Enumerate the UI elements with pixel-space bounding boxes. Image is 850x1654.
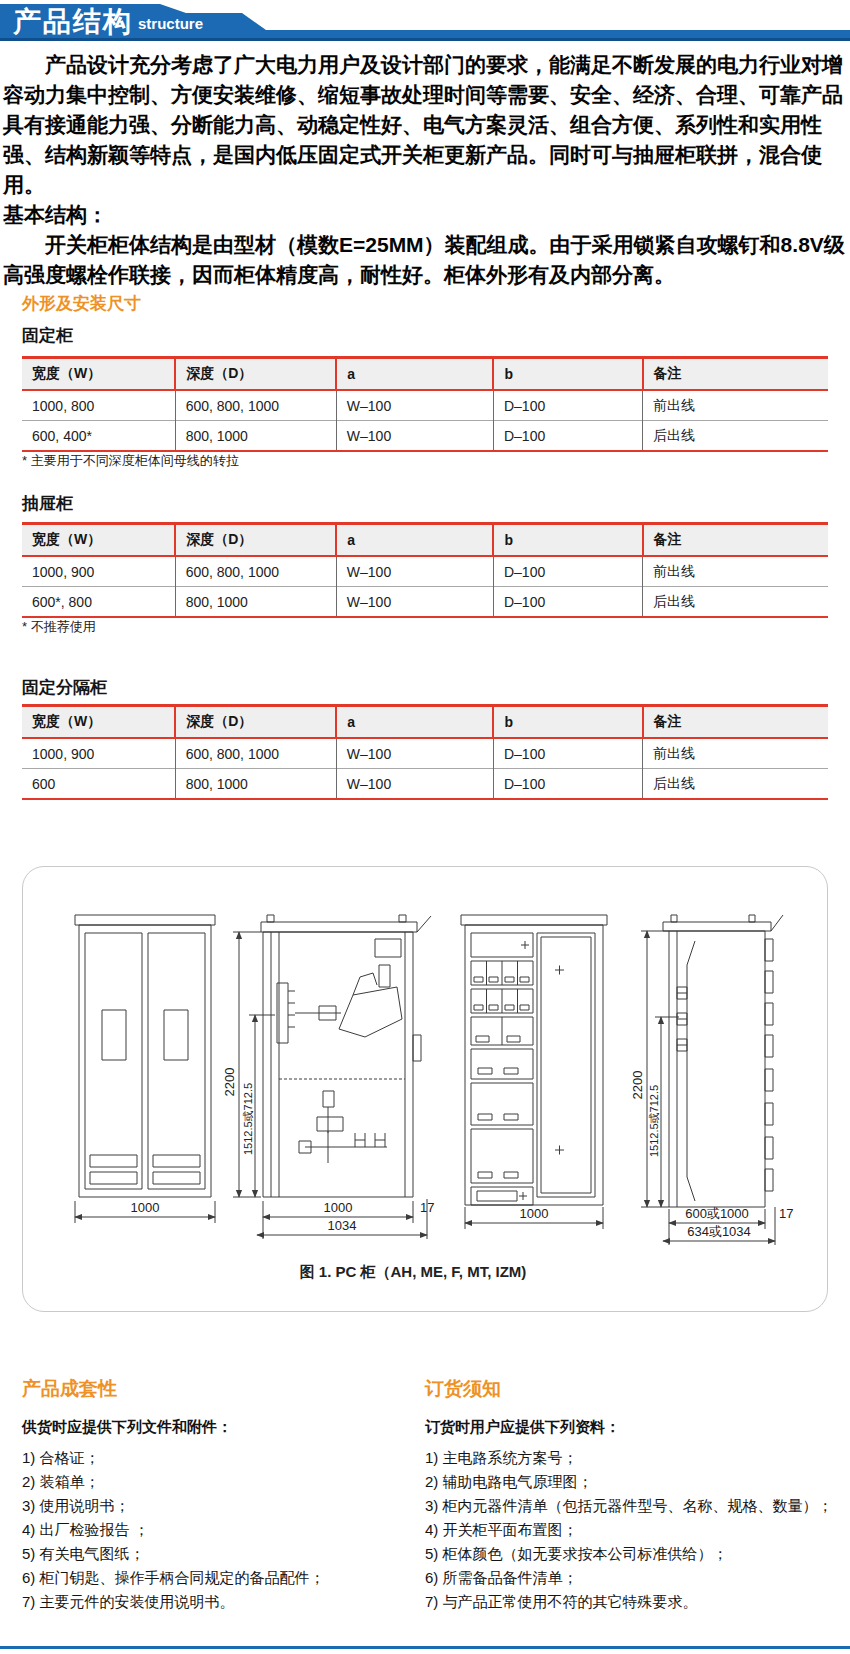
- table-cell: 前出线: [643, 556, 828, 587]
- column-header: 宽度（W）: [22, 706, 175, 739]
- list-item: 2) 装箱单；: [22, 1470, 407, 1494]
- list-item: 5) 有关电气图纸；: [22, 1542, 407, 1566]
- table-cell: 600, 800, 1000: [175, 556, 336, 587]
- list-item: 6) 柜门钥匙、操作手柄合同规定的备品配件；: [22, 1566, 407, 1590]
- table-cell: 800, 1000: [175, 769, 336, 800]
- table-cell: 前出线: [643, 390, 828, 421]
- drawer-front-drawing: 1000: [461, 915, 607, 1229]
- column-header: 宽度（W）: [22, 524, 175, 557]
- dim-front-width: 1000: [131, 1200, 160, 1215]
- table-footnote: * 不推荐使用: [22, 618, 96, 636]
- list-item: 1) 合格证；: [22, 1446, 407, 1470]
- list-item: 7) 与产品正常使用不符的其它特殊要求。: [425, 1590, 850, 1614]
- table-cell: 600: [22, 769, 175, 800]
- column-header: 备注: [643, 706, 828, 739]
- table-row: 1000, 900 600, 800, 1000 W–100 D–100 前出线: [22, 738, 828, 769]
- table-header-row: 宽度（W） 深度（D） a b 备注: [22, 524, 828, 557]
- list-item: 7) 主要元件的安装使用说明书。: [22, 1590, 407, 1614]
- ordering-intro: 订货时用户应提供下列资料：: [425, 1418, 850, 1437]
- column-header: a: [336, 706, 493, 739]
- table-header-row: 宽度（W） 深度（D） a b 备注: [22, 706, 828, 739]
- product-kit-section: 产品成套性 供货时应提供下列文件和附件： 1) 合格证； 2) 装箱单； 3) …: [22, 1376, 407, 1614]
- side-view-drawing: 2200 1512.5或712.5 600或1000 17 634或1034: [630, 915, 793, 1245]
- column-header: 宽度（W）: [22, 358, 175, 391]
- table-cell: D–100: [493, 556, 642, 587]
- list-item: 3) 使用说明书；: [22, 1494, 407, 1518]
- table-cell: 1000, 800: [22, 390, 175, 421]
- table-cell: 1000, 900: [22, 738, 175, 769]
- table-cell: 600, 800, 1000: [175, 390, 336, 421]
- table-cell: 600, 400*: [22, 421, 175, 452]
- dim-frame: 17: [420, 1200, 434, 1215]
- column-header: 深度（D）: [175, 524, 336, 557]
- page-subtitle: structure: [138, 15, 203, 32]
- list-item: 2) 辅助电路电气原理图；: [425, 1470, 850, 1494]
- figure-caption: 图 1. PC 柜（AH, ME, F, MT, IZM): [23, 1263, 827, 1282]
- table-cell: W–100: [336, 421, 493, 452]
- column-header: 备注: [643, 524, 828, 557]
- partition-cabinet-table: 宽度（W） 深度（D） a b 备注 1000, 900 600, 800, 1…: [22, 704, 828, 800]
- list-item: 5) 柜体颜色（如无要求按本公司标准供给）；: [425, 1542, 850, 1566]
- dim-busbar-height-2: 1512.5或712.5: [648, 1085, 660, 1157]
- dim-depth-2: 600或1000: [685, 1206, 749, 1221]
- column-header: 深度（D）: [175, 706, 336, 739]
- table-cell: W–100: [336, 556, 493, 587]
- table-title-partition: 固定分隔柜: [22, 676, 107, 699]
- table-cell: W–100: [336, 390, 493, 421]
- fixed-cabinet-table: 宽度（W） 深度（D） a b 备注 1000, 800 600, 800, 1…: [22, 356, 828, 452]
- table-cell: 600, 800, 1000: [175, 738, 336, 769]
- table-row: 600, 400* 800, 1000 W–100 D–100 后出线: [22, 421, 828, 452]
- intro-text: 产品设计充分考虑了广大电力用户及设计部门的要求，能满足不断发展的电力行业对增容动…: [3, 50, 848, 290]
- table-row: 600*, 800 800, 1000 W–100 D–100 后出线: [22, 587, 828, 618]
- list-item: 6) 所需备品备件清单；: [425, 1566, 850, 1590]
- figure-panel: 1000: [22, 866, 828, 1312]
- ordering-section: 订货须知 订货时用户应提供下列资料： 1) 主电路系统方案号； 2) 辅助电路电…: [425, 1376, 850, 1614]
- side-section-drawing: 2200 1512.5或712.5 1000 17 1034: [222, 915, 434, 1239]
- dim-height: 2200: [222, 1068, 237, 1097]
- table-cell: 1000, 900: [22, 556, 175, 587]
- table-cell: D–100: [493, 738, 642, 769]
- kit-heading: 产品成套性: [22, 1376, 407, 1402]
- table-cell: D–100: [493, 390, 642, 421]
- page-title: 产品结构: [13, 3, 133, 41]
- column-header: a: [336, 524, 493, 557]
- table-cell: W–100: [336, 738, 493, 769]
- table-cell: W–100: [336, 587, 493, 618]
- intro-paragraph-1: 产品设计充分考虑了广大电力用户及设计部门的要求，能满足不断发展的电力行业对增容动…: [3, 50, 848, 200]
- table-cell: 后出线: [643, 421, 828, 452]
- table-title-fixed: 固定柜: [22, 324, 73, 347]
- dim-depth-total-2: 634或1034: [687, 1224, 751, 1239]
- kit-list: 1) 合格证； 2) 装箱单； 3) 使用说明书； 4) 出厂检验报告 ； 5)…: [22, 1446, 407, 1614]
- table-cell: 后出线: [643, 587, 828, 618]
- list-item: 1) 主电路系统方案号；: [425, 1446, 850, 1470]
- column-header: a: [336, 358, 493, 391]
- dimensions-heading: 外形及安装尺寸: [22, 292, 141, 315]
- table-header-row: 宽度（W） 深度（D） a b 备注: [22, 358, 828, 391]
- table-row: 1000, 800 600, 800, 1000 W–100 D–100 前出线: [22, 390, 828, 421]
- front-view-drawing: 1000: [75, 915, 215, 1223]
- dim-depth: 1000: [324, 1200, 353, 1215]
- dim-height-2: 2200: [630, 1071, 645, 1100]
- cabinet-drawings: 1000: [23, 867, 827, 1311]
- drawer-cabinet-table: 宽度（W） 深度（D） a b 备注 1000, 900 600, 800, 1…: [22, 522, 828, 618]
- table-title-drawer: 抽屉柜: [22, 492, 73, 515]
- list-item: 4) 开关柜平面布置图；: [425, 1518, 850, 1542]
- column-header: b: [493, 524, 642, 557]
- intro-paragraph-2: 开关柜柜体结构是由型材（模数E=25MM）装配组成。由于采用锁紧自攻螺钉和8.8…: [3, 230, 848, 290]
- basic-structure-heading: 基本结构：: [3, 200, 848, 230]
- table-cell: W–100: [336, 769, 493, 800]
- catalog-page: 产品结构 structure 产品设计充分考虑了广大电力用户及设计部门的要求，能…: [0, 0, 850, 1654]
- table-row: 1000, 900 600, 800, 1000 W–100 D–100 前出线: [22, 556, 828, 587]
- table-cell: 前出线: [643, 738, 828, 769]
- table-cell: D–100: [493, 769, 642, 800]
- column-header: b: [493, 706, 642, 739]
- table-footnote: * 主要用于不同深度柜体间母线的转拉: [22, 452, 239, 470]
- table-cell: 后出线: [643, 769, 828, 800]
- table-row: 600 800, 1000 W–100 D–100 后出线: [22, 769, 828, 800]
- column-header: 深度（D）: [175, 358, 336, 391]
- dim-drawer-width: 1000: [520, 1206, 549, 1221]
- table-cell: 600*, 800: [22, 587, 175, 618]
- ordering-heading: 订货须知: [425, 1376, 850, 1402]
- ordering-list: 1) 主电路系统方案号； 2) 辅助电路电气原理图； 3) 柜内元器件清单（包括…: [425, 1446, 850, 1614]
- bottom-divider: [0, 1646, 850, 1649]
- table-cell: 800, 1000: [175, 421, 336, 452]
- dim-frame-2: 17: [779, 1206, 793, 1221]
- dim-busbar-height: 1512.5或712.5: [242, 1083, 254, 1155]
- table-cell: D–100: [493, 587, 642, 618]
- table-cell: D–100: [493, 421, 642, 452]
- list-item: 4) 出厂检验报告 ；: [22, 1518, 407, 1542]
- list-item: 3) 柜内元器件清单（包括元器件型号、名称、规格、数量）；: [425, 1494, 850, 1518]
- dim-depth-total: 1034: [328, 1218, 357, 1233]
- column-header: 备注: [643, 358, 828, 391]
- kit-intro: 供货时应提供下列文件和附件：: [22, 1418, 407, 1437]
- column-header: b: [493, 358, 642, 391]
- table-cell: 800, 1000: [175, 587, 336, 618]
